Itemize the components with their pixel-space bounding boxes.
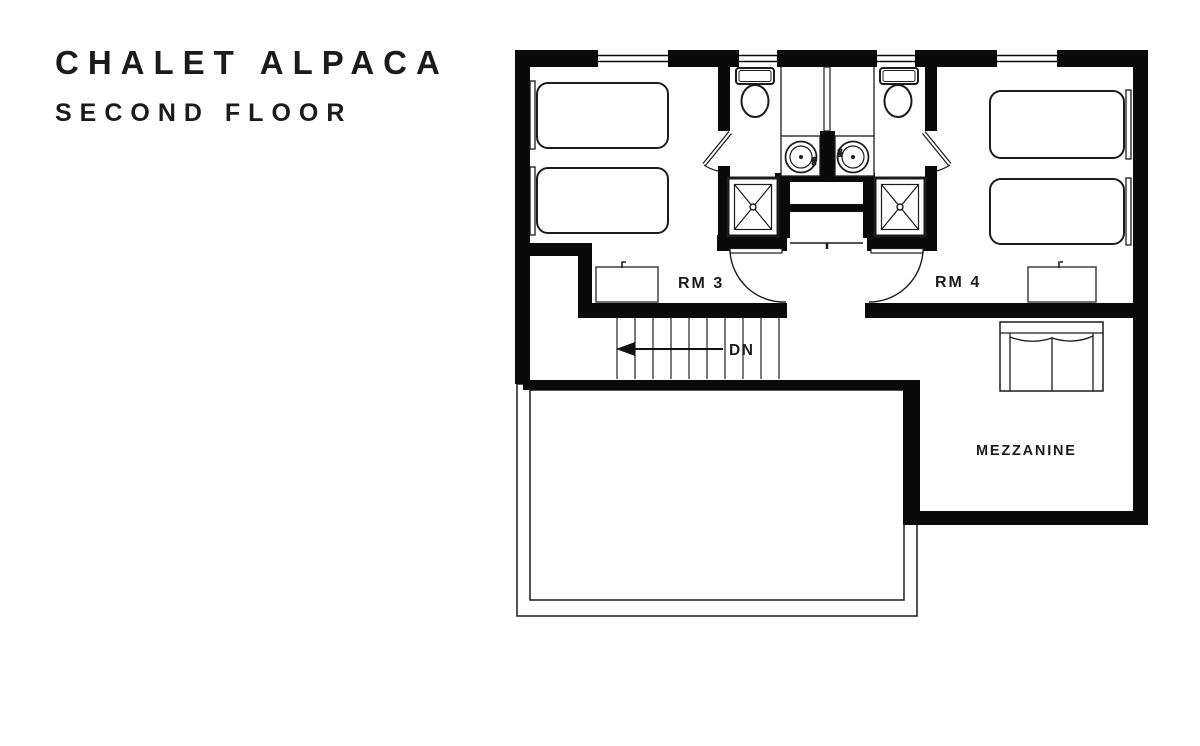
- rm3-door: [730, 249, 786, 303]
- rm4-bed2-headboard: [1126, 178, 1131, 245]
- rm4-label: RM 4: [935, 274, 981, 291]
- wall-closet-left: [778, 182, 790, 238]
- wall-bath1-upper: [718, 67, 730, 131]
- void-inner-outline: [530, 390, 904, 600]
- stair-direction-arrow-icon: [616, 342, 635, 356]
- shower2-drain: [897, 204, 903, 210]
- rm4-bed1: [990, 91, 1124, 158]
- mezzanine-sofa: [1000, 322, 1103, 391]
- rm3-bed1: [537, 83, 668, 148]
- sink1-label: 960: [810, 157, 816, 166]
- sink2-drain: [851, 155, 855, 159]
- mezzanine-label: MEZZANINE: [976, 443, 1077, 459]
- rm4-door-swing: [869, 251, 923, 302]
- bathroom-partitions: [781, 67, 874, 136]
- rm3-bed1-headboard: [530, 81, 535, 149]
- rm3-dresser: [596, 267, 658, 302]
- wall-mezzanine-left: [903, 380, 920, 525]
- wall-mezzanine-bottom: [903, 511, 1148, 525]
- wall-hall-right: [865, 303, 1148, 318]
- wall-bath2-lower: [925, 166, 937, 235]
- wall-right: [1133, 50, 1148, 525]
- wall-hall-left: [578, 303, 787, 318]
- floorplan-page: CHALET ALPACA SECOND FLOOR: [0, 0, 1200, 746]
- rm3-door-leaf: [730, 249, 782, 254]
- toilet1-tank-inner: [739, 71, 771, 82]
- wall-bath-divider: [820, 131, 835, 178]
- rm4-door-leaf: [871, 249, 923, 254]
- wall-bath2-upper: [925, 67, 937, 131]
- closet-doors: [790, 243, 863, 249]
- toilet2-bowl: [885, 85, 912, 117]
- window-bath1: [739, 50, 777, 67]
- rm4-bed1-headboard: [1126, 90, 1131, 159]
- bath1-door: [703, 132, 732, 172]
- bath-divider-thin: [824, 67, 830, 131]
- rm4-furniture: [990, 90, 1131, 302]
- window-bath2: [877, 50, 915, 67]
- rm4-dresser: [1028, 267, 1096, 302]
- staircase: [616, 318, 779, 379]
- shower1-drain: [750, 204, 756, 210]
- wall-stairhall-bottom: [523, 380, 920, 390]
- rm4-door: [869, 249, 923, 303]
- rm3-door-swing: [730, 251, 786, 302]
- sink1-drain: [799, 155, 803, 159]
- void-outer-outline: [517, 384, 917, 616]
- rm3-bed2: [537, 168, 668, 233]
- window-rm3: [598, 50, 668, 67]
- rm3-furniture: [530, 81, 668, 302]
- wall-left: [515, 50, 530, 384]
- window-rm4: [997, 50, 1057, 67]
- rm3-label: RM 3: [678, 275, 724, 292]
- rm4-bed2: [990, 179, 1124, 244]
- void-open-to-below: [517, 384, 917, 616]
- sink2-label: 960: [838, 148, 844, 157]
- toilet2-tank-inner: [883, 71, 915, 82]
- rm3-bed2-headboard: [530, 167, 535, 235]
- wall-closet-right: [863, 182, 875, 238]
- bath2-door: [923, 132, 952, 172]
- floorplan-drawing: 960 960: [0, 0, 1200, 746]
- stairs-down-label: DN: [729, 342, 754, 359]
- toilet1-bowl: [742, 85, 769, 117]
- wall-closet-shelf: [790, 204, 863, 212]
